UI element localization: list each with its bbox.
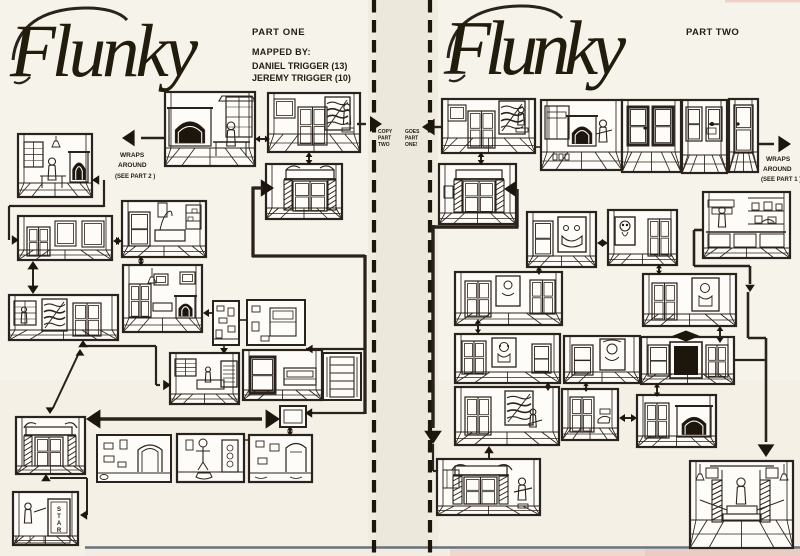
svg-text:AROUND: AROUND: [118, 162, 147, 169]
svg-text:R: R: [57, 528, 62, 534]
svg-text:AROUND: AROUND: [763, 166, 792, 173]
svg-text:PART: PART: [405, 136, 418, 142]
svg-text:(SEE PART 1 ): (SEE PART 1 ): [761, 177, 800, 183]
svg-text:WRAPS: WRAPS: [120, 152, 145, 159]
svg-text:GOES: GOES: [405, 129, 420, 135]
svg-text:ONE!: ONE!: [405, 142, 418, 148]
svg-text:COPY: COPY: [378, 129, 393, 135]
svg-text:JEREMY TRIGGER (10): JEREMY TRIGGER (10): [252, 73, 351, 83]
svg-text:PART TWO: PART TWO: [686, 27, 739, 38]
svg-text:MAPPED BY:: MAPPED BY:: [252, 47, 311, 57]
svg-text:WRAPS: WRAPS: [766, 156, 791, 163]
svg-text:TWO: TWO: [378, 142, 390, 148]
svg-text:S: S: [57, 507, 61, 513]
svg-text:DANIEL TRIGGER (13): DANIEL TRIGGER (13): [252, 61, 347, 71]
svg-text:(SEE PART 2 ): (SEE PART 2 ): [115, 174, 155, 180]
svg-text:PART: PART: [378, 136, 391, 142]
svg-text:Flunky: Flunky: [443, 5, 627, 91]
svg-text:T: T: [57, 514, 61, 520]
svg-text:A: A: [57, 521, 62, 527]
svg-text:Flunky: Flunky: [9, 10, 199, 93]
svg-text:PART ONE: PART ONE: [252, 27, 305, 38]
